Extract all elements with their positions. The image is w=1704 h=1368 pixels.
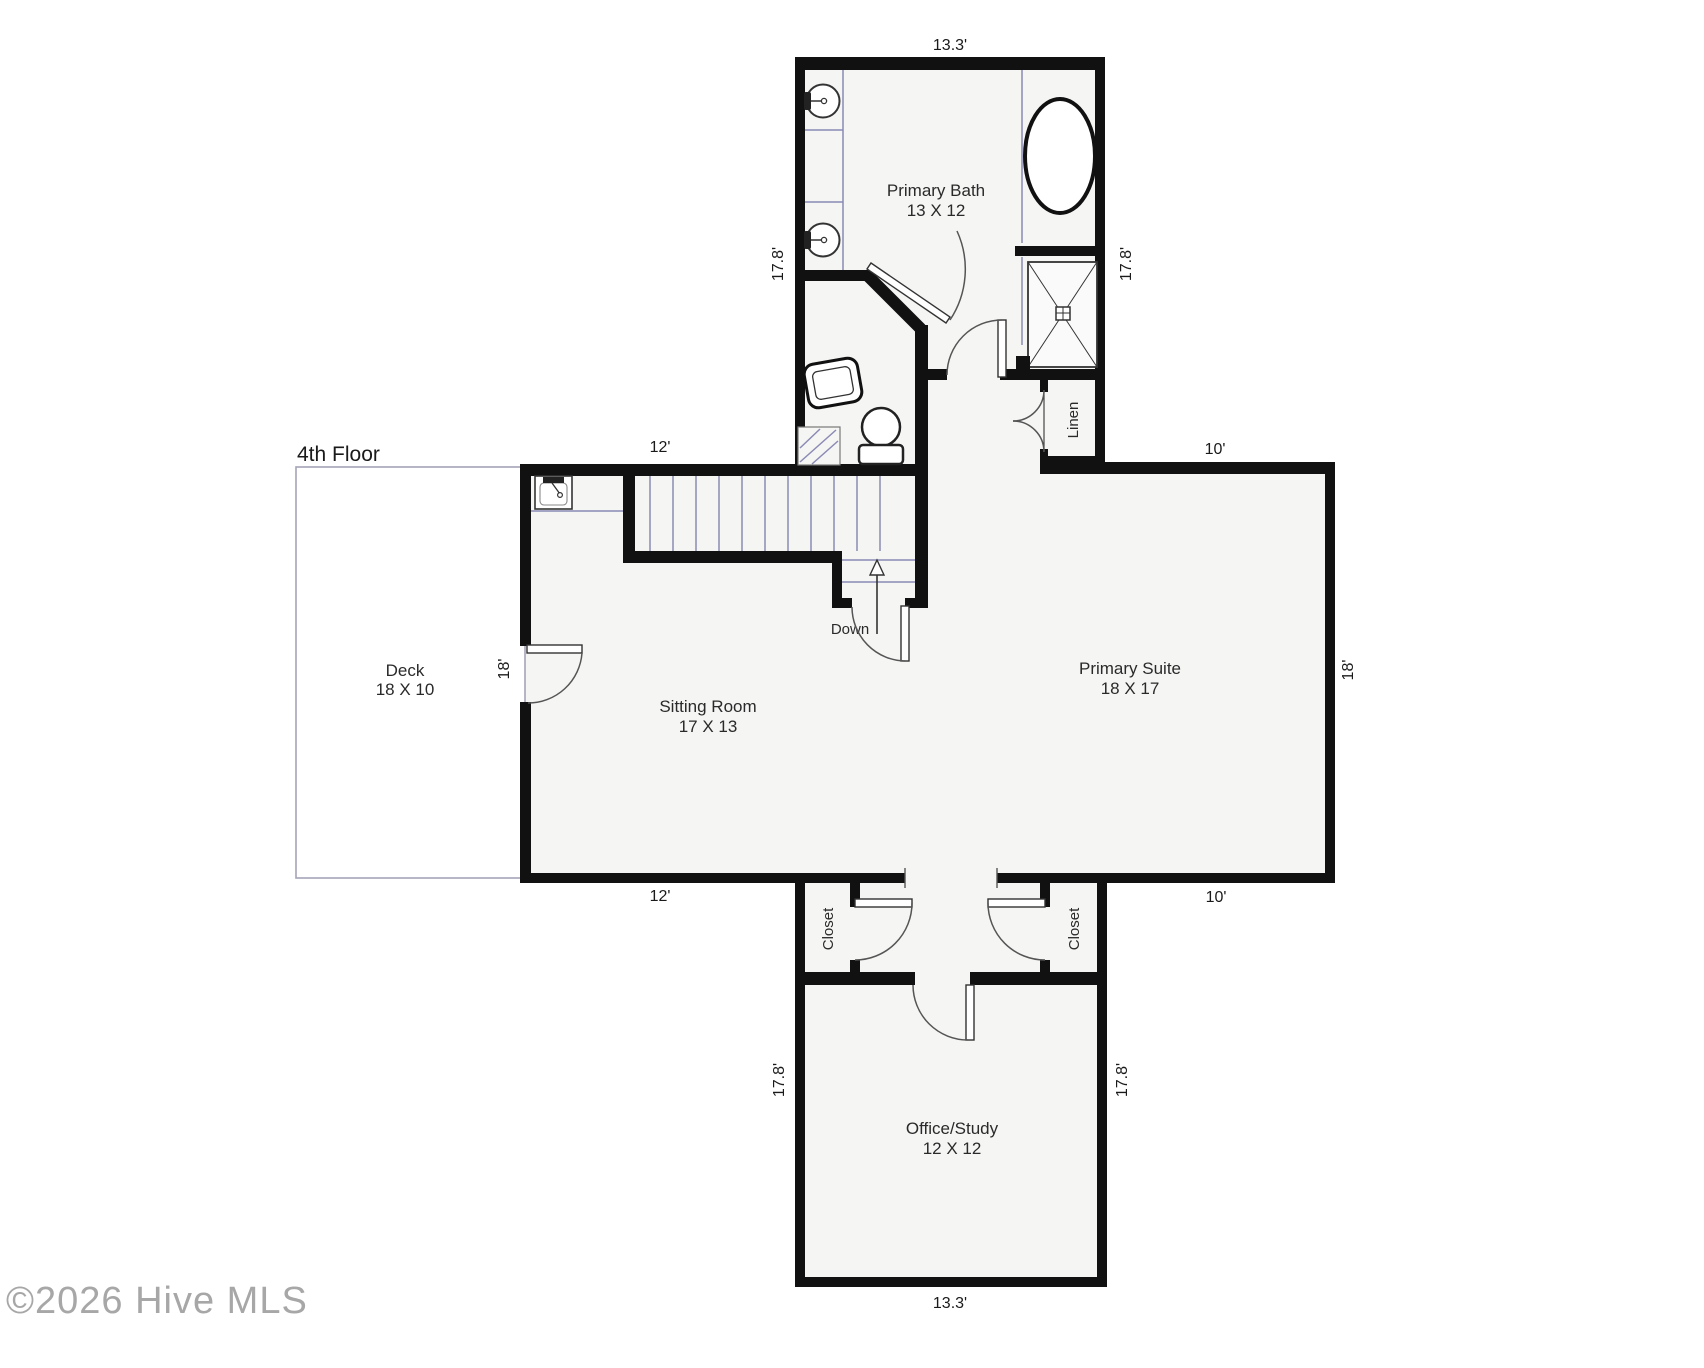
wall-cabinet (803, 357, 864, 410)
dim-sitting-bottom: 12' (650, 888, 671, 905)
dim-suite-right: 18' (1340, 660, 1357, 681)
office-floor (795, 875, 1107, 1287)
closet-left-label: Closet (820, 907, 837, 950)
room-size-deck: 18 X 10 (376, 680, 435, 699)
dim-suite-bottom: 10' (1206, 889, 1227, 906)
room-name-office-study: Office/Study (906, 1119, 999, 1138)
dim-suite-top: 10' (1205, 441, 1226, 458)
room-name-primary-bath: Primary Bath (887, 181, 985, 200)
room-size-primary-suite: 18 X 17 (1101, 679, 1160, 698)
dim-bath-left: 17.8' (770, 247, 787, 281)
linen-label: Linen (1065, 402, 1082, 439)
stairs-down-label: Down (831, 621, 869, 638)
closet-right-label: Closet (1066, 907, 1083, 950)
floor-title: 4th Floor (297, 443, 380, 466)
dim-office-left: 17.8' (771, 1063, 788, 1097)
floor-plan-page: { "title": { "floor": "4th Floor" }, "wa… (0, 0, 1704, 1368)
dim-bath-top: 13.3' (933, 37, 967, 54)
chase-hatch (798, 427, 840, 465)
dim-bath-right: 17.8' (1118, 247, 1135, 281)
room-size-office-study: 12 X 12 (923, 1139, 982, 1158)
shower (1016, 257, 1097, 372)
room-size-sitting-room: 17 X 13 (679, 717, 738, 736)
room-name-primary-suite: Primary Suite (1079, 659, 1181, 678)
dim-office-right: 17.8' (1114, 1063, 1131, 1097)
dim-office-bottom: 13.3' (933, 1295, 967, 1312)
floor-plan-canvas: Down (0, 0, 1704, 1368)
mls-watermark: ©2026 Hive MLS (6, 1280, 308, 1323)
toilet (859, 408, 903, 464)
room-name-deck: Deck (386, 661, 425, 680)
bar-faucet (543, 477, 564, 483)
dim-sitting-left: 18' (496, 659, 513, 680)
room-size-primary-bath: 13 X 12 (907, 201, 966, 220)
room-name-sitting-room: Sitting Room (659, 697, 756, 716)
bathtub (1025, 99, 1095, 213)
dim-sitting-top: 12' (650, 439, 671, 456)
